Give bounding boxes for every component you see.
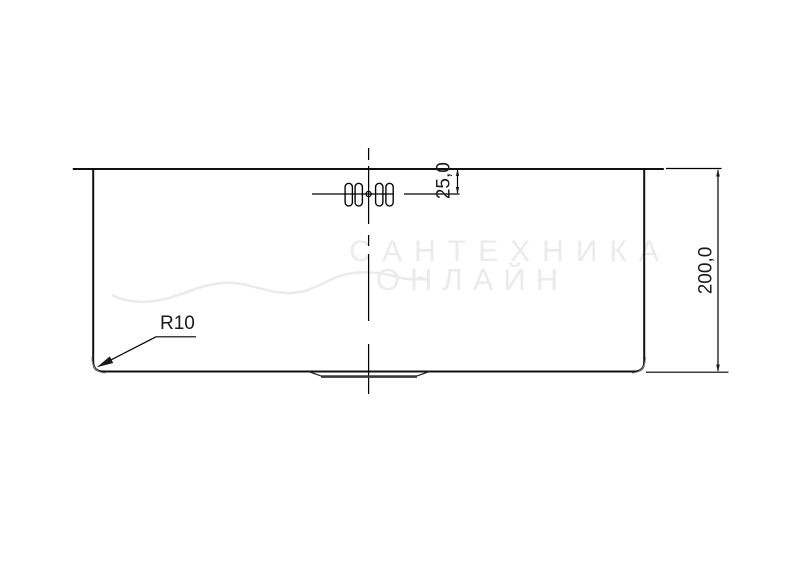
svg-text:25,0: 25,0 (434, 162, 455, 199)
svg-text:R10: R10 (160, 313, 195, 334)
svg-text:200,0: 200,0 (696, 247, 717, 295)
